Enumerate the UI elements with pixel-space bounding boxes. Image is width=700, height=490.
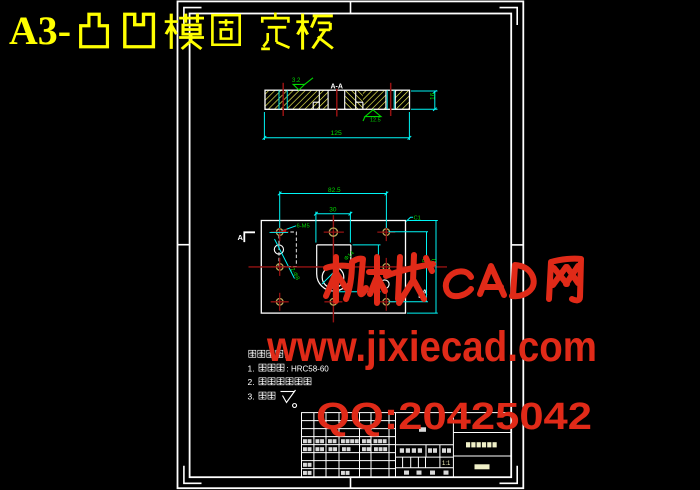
svg-text:QQ:20425042: QQ:20425042 (316, 396, 592, 438)
svg-text:A3-: A3- (9, 8, 71, 53)
svg-text:12.5: 12.5 (370, 118, 381, 124)
svg-text:2.: 2. (248, 377, 255, 387)
svg-text:2-Φ8: 2-Φ8 (289, 267, 300, 281)
svg-text:3.2: 3.2 (292, 78, 301, 84)
svg-text:1.: 1. (248, 364, 255, 374)
svg-text:30: 30 (329, 207, 337, 214)
svg-text:www.jixiecad.com: www.jixiecad.com (266, 323, 597, 371)
svg-text:16: 16 (430, 92, 437, 100)
svg-text:82.5: 82.5 (328, 187, 341, 194)
svg-text:C1: C1 (414, 216, 421, 222)
svg-text:1:1: 1:1 (442, 461, 451, 467)
svg-text:A: A (238, 233, 244, 242)
svg-text:125: 125 (331, 130, 343, 137)
svg-text:6-M5: 6-M5 (297, 224, 310, 230)
svg-text:A-A: A-A (331, 83, 343, 90)
svg-text:3.: 3. (248, 392, 255, 402)
